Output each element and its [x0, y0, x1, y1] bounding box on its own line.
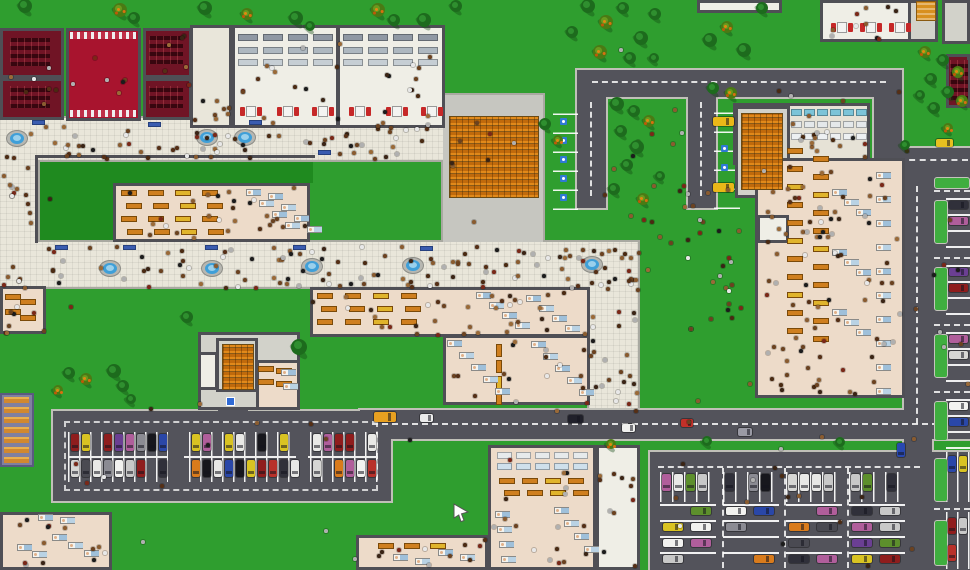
person: [885, 261, 889, 265]
fountain[interactable]: [201, 260, 223, 277]
bench: [20, 299, 36, 305]
car[interactable]: [335, 434, 343, 451]
building-east-ward-annex[interactable]: [757, 215, 789, 243]
bench-blue: [205, 245, 218, 250]
tree-highlight: [632, 142, 639, 149]
lecture-seats[interactable]: [222, 344, 254, 390]
car[interactable]: [824, 474, 833, 491]
bench: [813, 318, 829, 324]
car[interactable]: [698, 474, 707, 491]
person: [686, 238, 690, 242]
person: [66, 143, 70, 147]
person: [581, 248, 585, 252]
car[interactable]: [236, 434, 244, 451]
tree-highlight: [657, 173, 662, 178]
shuttle-bus[interactable]: [374, 412, 396, 422]
person: [241, 143, 245, 147]
tree: [915, 90, 925, 100]
person: [512, 141, 516, 145]
car[interactable]: [812, 474, 821, 491]
person: [589, 354, 593, 358]
bed: [471, 364, 486, 371]
parking-stall-line: [946, 265, 970, 267]
car[interactable]: [280, 460, 288, 477]
fountain-spray: [409, 262, 417, 268]
car[interactable]: [159, 460, 167, 477]
car[interactable]: [726, 507, 746, 515]
car-windshield: [864, 524, 867, 530]
car[interactable]: [691, 539, 711, 547]
car[interactable]: [192, 434, 200, 451]
bench: [373, 319, 389, 325]
person: [304, 87, 308, 91]
person: [544, 355, 548, 359]
person: [508, 303, 512, 307]
parking-island: [934, 458, 948, 502]
person: [851, 136, 855, 140]
table: [343, 47, 363, 54]
parking-stall-line: [660, 552, 716, 554]
person: [863, 142, 867, 146]
person: [562, 471, 566, 475]
car[interactable]: [817, 523, 837, 531]
car[interactable]: [137, 460, 145, 477]
person: [241, 90, 245, 94]
bed: [499, 541, 514, 548]
person: [24, 90, 28, 94]
patient-head: [858, 271, 861, 274]
car[interactable]: [93, 460, 101, 477]
garden-row: [4, 447, 29, 453]
table: [263, 34, 283, 41]
car[interactable]: [335, 460, 343, 477]
car[interactable]: [726, 523, 746, 531]
car[interactable]: [863, 474, 872, 491]
table: [856, 121, 867, 128]
tree: [835, 437, 845, 447]
car[interactable]: [225, 460, 233, 477]
car[interactable]: [368, 460, 376, 477]
car[interactable]: [852, 507, 872, 515]
bench-blue: [293, 245, 306, 250]
person: [195, 135, 199, 139]
bed-blanket: [851, 260, 859, 265]
parking-stall-line: [786, 504, 842, 506]
car-windshield: [127, 471, 133, 474]
bed-blanket: [562, 366, 570, 371]
chair: [877, 23, 882, 32]
taxi[interactable]: [713, 183, 734, 192]
road[interactable]: [577, 70, 902, 97]
car-windshield: [747, 429, 750, 435]
chair: [277, 107, 282, 116]
tree: [241, 8, 253, 20]
car[interactable]: [104, 434, 112, 451]
car[interactable]: [346, 460, 354, 477]
person: [841, 99, 845, 103]
person: [105, 157, 109, 161]
car[interactable]: [754, 555, 774, 563]
car[interactable]: [789, 523, 809, 531]
car[interactable]: [949, 418, 968, 426]
car[interactable]: [800, 474, 809, 491]
person: [863, 214, 867, 218]
car[interactable]: [203, 460, 211, 477]
car[interactable]: [949, 402, 968, 410]
car[interactable]: [761, 474, 770, 491]
person: [222, 107, 226, 111]
car[interactable]: [936, 139, 953, 147]
car[interactable]: [686, 474, 695, 491]
car[interactable]: [880, 523, 900, 531]
person: [207, 214, 211, 218]
person: [324, 529, 328, 533]
taxi[interactable]: [713, 117, 734, 126]
car-windshield: [369, 445, 375, 448]
car[interactable]: [852, 523, 872, 531]
tree-highlight: [294, 341, 302, 349]
person: [562, 560, 566, 564]
person: [451, 275, 455, 279]
car[interactable]: [269, 460, 277, 477]
car-windshield: [949, 555, 955, 558]
tree-highlight: [119, 382, 125, 388]
tree: [617, 2, 629, 14]
fountain[interactable]: [6, 130, 28, 147]
fountain-spray: [588, 261, 596, 267]
car[interactable]: [357, 460, 365, 477]
person: [726, 188, 730, 192]
car[interactable]: [313, 434, 321, 451]
lecture-seats[interactable]: [741, 113, 783, 190]
car[interactable]: [346, 434, 354, 451]
person: [2, 174, 6, 178]
car[interactable]: [280, 434, 288, 451]
patient-head: [285, 385, 288, 388]
car[interactable]: [880, 555, 900, 563]
table: [497, 463, 512, 470]
tree: [643, 115, 655, 127]
person: [254, 286, 258, 290]
car[interactable]: [880, 507, 900, 515]
car[interactable]: [420, 414, 433, 422]
road-dash-line: [916, 186, 918, 424]
car[interactable]: [663, 555, 683, 563]
person: [322, 247, 326, 251]
person: [181, 259, 185, 263]
person: [556, 525, 560, 529]
car[interactable]: [949, 201, 968, 209]
car[interactable]: [115, 460, 123, 477]
bed: [84, 550, 99, 557]
car[interactable]: [291, 460, 299, 477]
car[interactable]: [368, 434, 376, 451]
car[interactable]: [880, 539, 900, 547]
car[interactable]: [82, 434, 90, 451]
car[interactable]: [817, 555, 837, 563]
bench: [573, 490, 589, 496]
person: [810, 141, 814, 145]
car[interactable]: [137, 434, 145, 451]
car[interactable]: [949, 217, 968, 225]
car[interactable]: [159, 434, 167, 451]
patient-head: [878, 294, 881, 297]
car-windshield: [762, 485, 769, 488]
person: [42, 329, 46, 333]
car[interactable]: [691, 523, 711, 531]
tree-highlight: [930, 104, 936, 110]
car[interactable]: [789, 539, 809, 547]
person: [2, 283, 6, 287]
tree-highlight: [130, 14, 136, 20]
person: [555, 409, 559, 413]
person: [8, 183, 12, 187]
car[interactable]: [949, 351, 968, 359]
person: [481, 285, 485, 289]
person: [546, 293, 550, 297]
cinema-stage: [70, 110, 136, 117]
person: [433, 319, 437, 323]
car[interactable]: [71, 434, 79, 451]
car[interactable]: [788, 474, 797, 491]
patient-head: [462, 556, 465, 559]
tree: [113, 3, 127, 17]
tree: [417, 13, 431, 27]
patient-head: [461, 354, 464, 357]
car[interactable]: [115, 434, 123, 451]
lecture-seats[interactable]: [449, 116, 539, 198]
person: [791, 303, 795, 307]
tree: [952, 66, 964, 78]
car[interactable]: [817, 507, 837, 515]
car-windshield: [687, 485, 694, 488]
car[interactable]: [148, 434, 156, 451]
car[interactable]: [959, 518, 967, 534]
car[interactable]: [258, 460, 266, 477]
bed-blanket: [288, 370, 296, 375]
car[interactable]: [313, 460, 321, 477]
person: [285, 282, 289, 286]
bed-blanket: [509, 313, 517, 318]
car[interactable]: [948, 456, 956, 472]
patient-head: [499, 528, 502, 531]
car[interactable]: [225, 434, 233, 451]
cinema-seats[interactable]: [149, 36, 183, 64]
bed: [844, 259, 859, 266]
tree: [956, 95, 968, 107]
car[interactable]: [789, 555, 809, 563]
bed: [447, 340, 462, 347]
table: [288, 34, 308, 41]
parking-stall-line: [786, 536, 842, 538]
person: [508, 458, 512, 462]
car[interactable]: [674, 474, 683, 491]
car[interactable]: [738, 428, 752, 436]
car[interactable]: [959, 456, 967, 472]
patient-head: [309, 228, 312, 231]
car-windshield: [248, 471, 254, 474]
car[interactable]: [214, 460, 222, 477]
person: [606, 287, 610, 291]
person: [160, 484, 164, 488]
handicap-parking-icon: [560, 194, 567, 201]
handicap-parking-icon: [560, 118, 567, 125]
bed-blanket: [883, 293, 891, 298]
person: [226, 229, 230, 233]
person: [380, 325, 384, 329]
table: [238, 59, 258, 66]
table: [246, 106, 256, 117]
car-windshield: [864, 508, 867, 514]
bench: [258, 379, 274, 385]
person: [481, 280, 485, 284]
person: [175, 146, 179, 150]
person: [9, 75, 13, 79]
fountain[interactable]: [234, 129, 256, 146]
bed: [268, 193, 283, 200]
person: [193, 118, 197, 122]
road[interactable]: [688, 90, 716, 208]
car[interactable]: [247, 460, 255, 477]
car[interactable]: [749, 474, 758, 491]
bench: [208, 229, 224, 235]
person: [602, 550, 606, 554]
handicap-parking-icon: [560, 175, 567, 182]
patient-head: [248, 191, 251, 194]
bed: [844, 199, 859, 206]
person: [201, 147, 205, 151]
car[interactable]: [897, 443, 905, 457]
bed-blanket: [24, 545, 32, 550]
person: [404, 128, 408, 132]
bed: [876, 268, 891, 275]
car[interactable]: [851, 474, 860, 491]
car[interactable]: [725, 474, 734, 491]
person: [839, 253, 843, 257]
person: [32, 311, 36, 315]
game-viewport[interactable]: [0, 0, 970, 570]
tree: [615, 125, 627, 137]
table: [418, 59, 438, 66]
car[interactable]: [622, 424, 635, 432]
autumn-dots: [117, 8, 120, 11]
car[interactable]: [662, 474, 671, 491]
fountain[interactable]: [402, 257, 424, 274]
person: [727, 289, 731, 293]
tree: [919, 46, 931, 58]
patient-head: [878, 318, 881, 321]
building-east-ward[interactable]: [755, 158, 905, 398]
car[interactable]: [258, 434, 266, 451]
bed: [281, 204, 296, 211]
car-windshield: [864, 540, 867, 546]
lawn: [113, 160, 313, 183]
cinema-seats[interactable]: [149, 86, 183, 108]
bed: [574, 533, 589, 540]
car[interactable]: [82, 460, 90, 477]
bed: [856, 329, 871, 336]
bed-blanket: [275, 194, 283, 199]
car[interactable]: [236, 460, 244, 477]
bed-blanket: [533, 296, 541, 301]
cinema-seats[interactable]: [10, 38, 50, 66]
person: [818, 390, 822, 394]
person: [383, 254, 387, 258]
car-windshield: [577, 416, 580, 422]
tree-highlight: [65, 369, 71, 375]
car-windshield: [369, 471, 375, 474]
car-windshield: [281, 471, 287, 474]
car-windshield: [750, 485, 757, 488]
person: [141, 540, 145, 544]
person: [417, 66, 421, 70]
car[interactable]: [663, 539, 683, 547]
person: [139, 150, 143, 154]
bed: [552, 315, 567, 322]
tree: [371, 3, 385, 17]
table: [343, 34, 363, 41]
table: [313, 47, 333, 54]
patient-head: [878, 390, 881, 393]
building-northeast-gray-building[interactable]: [942, 0, 970, 44]
car-windshield: [237, 471, 243, 474]
fountain-spray: [13, 135, 21, 141]
tree-highlight: [739, 45, 746, 52]
person: [335, 65, 339, 69]
building-cinema-main-hall[interactable]: [66, 28, 141, 121]
car[interactable]: [126, 434, 134, 451]
car-windshield: [789, 485, 796, 488]
person: [52, 250, 56, 254]
icon-dot: [562, 120, 565, 123]
car-windshield: [801, 524, 804, 530]
bed-blanket: [883, 173, 891, 178]
garden-row: [4, 397, 29, 403]
person: [875, 337, 879, 341]
car[interactable]: [852, 555, 872, 563]
person: [591, 315, 595, 319]
car[interactable]: [691, 507, 711, 515]
person: [634, 278, 638, 282]
tree-highlight: [944, 88, 950, 94]
tree-highlight: [610, 185, 616, 191]
car[interactable]: [948, 518, 956, 534]
table: [573, 452, 588, 459]
car[interactable]: [192, 460, 200, 477]
cinema-stage: [70, 32, 136, 39]
car[interactable]: [948, 545, 956, 561]
car[interactable]: [852, 539, 872, 547]
person: [590, 281, 594, 285]
building-small-white-room[interactable]: [198, 352, 218, 390]
person: [408, 438, 412, 442]
bench: [378, 543, 394, 549]
car[interactable]: [887, 474, 896, 491]
chair: [312, 107, 317, 116]
person: [629, 214, 633, 218]
bench: [345, 319, 361, 325]
icon-dot: [562, 177, 565, 180]
person: [185, 154, 189, 158]
car[interactable]: [568, 415, 583, 423]
patient-head: [878, 366, 881, 369]
car-windshield: [149, 445, 155, 448]
car[interactable]: [754, 507, 774, 515]
car[interactable]: [949, 284, 968, 292]
building-north-building[interactable]: [697, 0, 782, 13]
car[interactable]: [126, 460, 134, 477]
person: [877, 37, 881, 41]
